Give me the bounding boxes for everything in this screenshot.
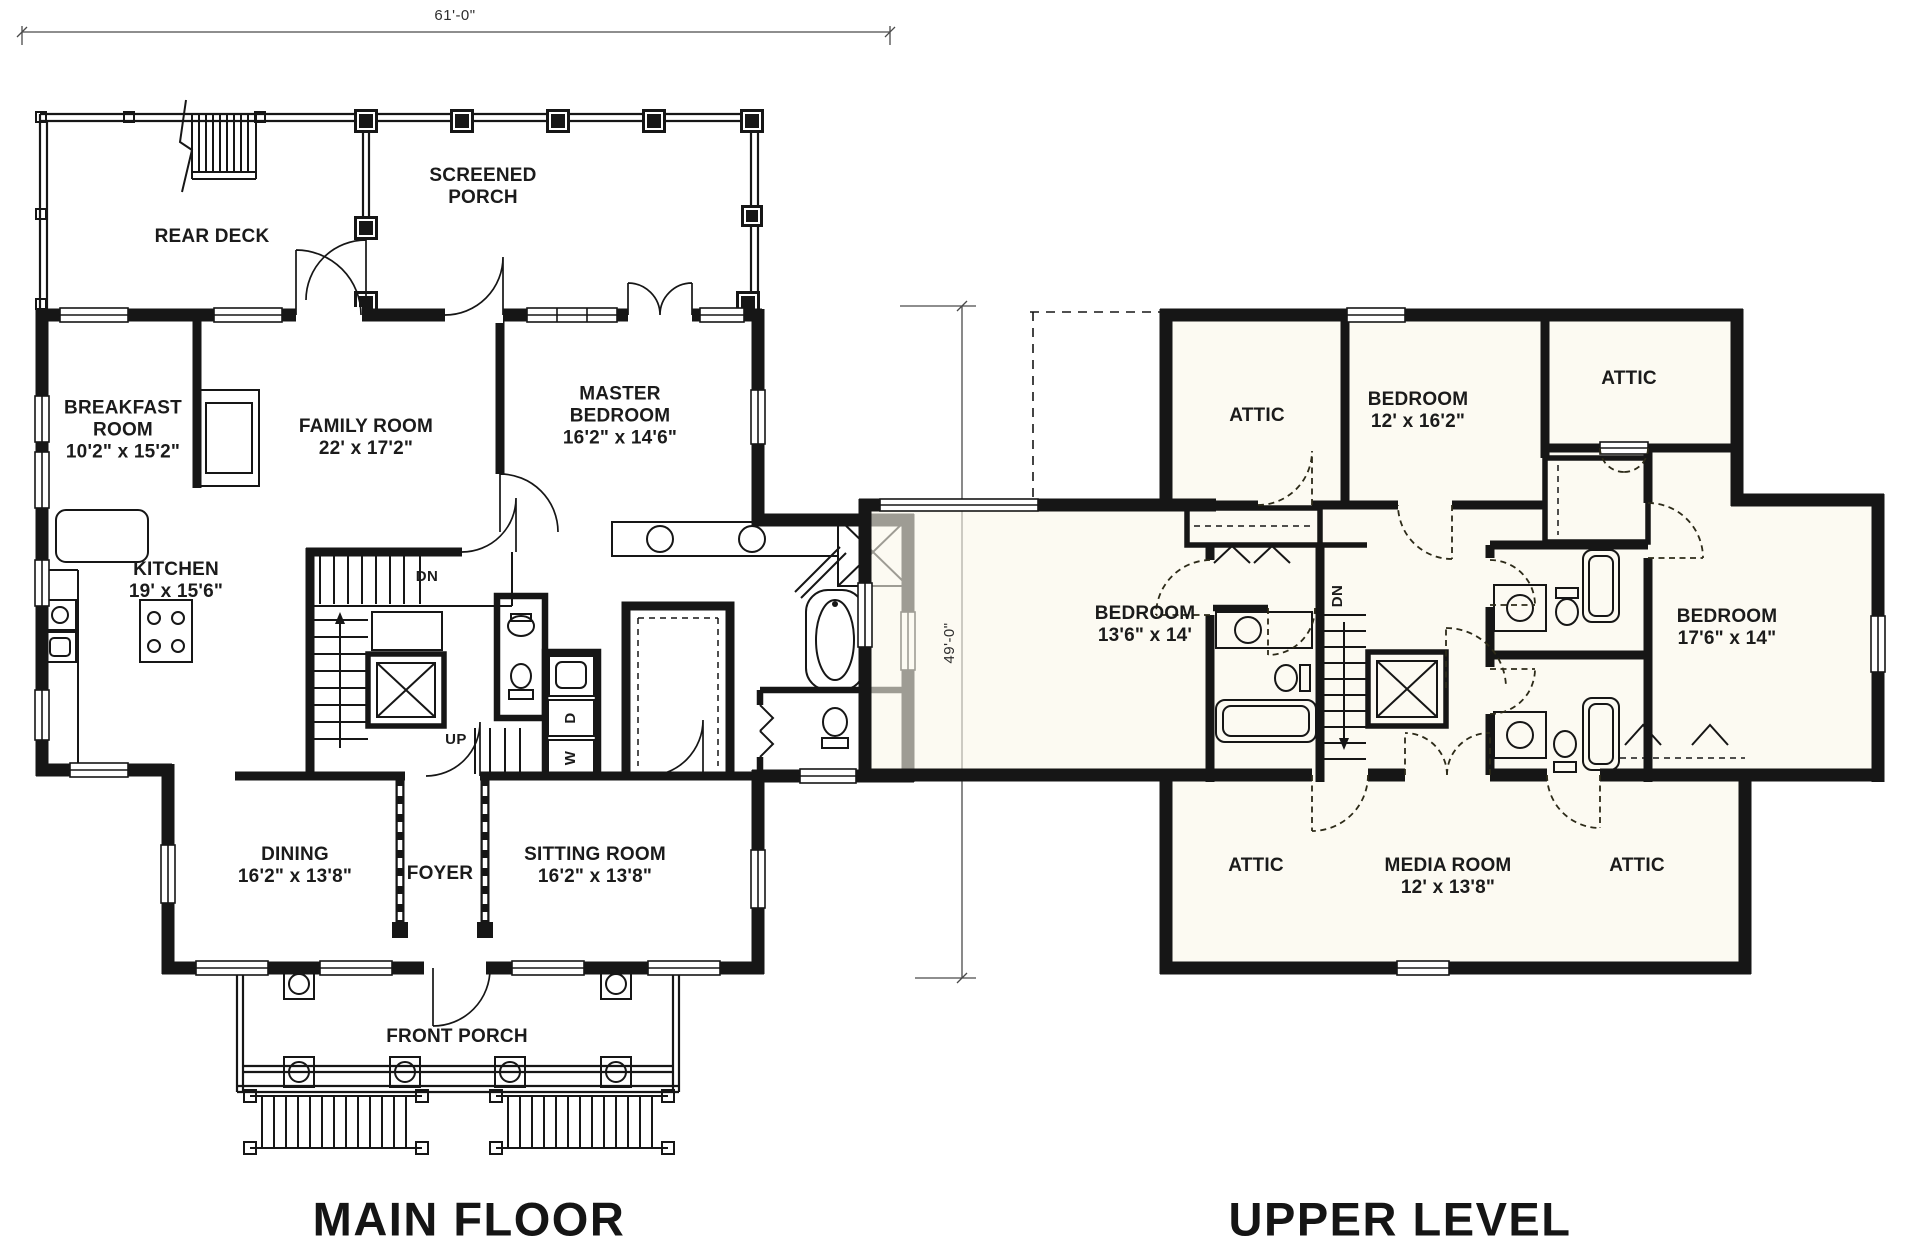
dimension-height-label: 49'-0" [941, 622, 959, 663]
room-label-screened-porch: SCREENED PORCH [423, 165, 543, 209]
room-label-attic-bottom-right: ATTIC [1582, 855, 1692, 877]
room-label-dining: DINING16'2" x 13'8" [205, 844, 385, 888]
room-label-attic-top-left: ATTIC [1202, 405, 1312, 427]
stair-annotation-dn: DN [416, 568, 438, 586]
stair-annotation-up: UP [445, 731, 467, 749]
fireplace [199, 390, 259, 486]
dimension-width-label: 61'-0" [434, 7, 475, 25]
washer-annotation: W [562, 751, 580, 766]
master-bath-fixtures [508, 518, 908, 776]
upper-level-title: UPPER LEVEL [1229, 1193, 1572, 1248]
main-floor-title: MAIN FLOOR [313, 1193, 626, 1248]
upper-stair-annotation-dn: DN [1329, 585, 1347, 607]
room-label-family-room: FAMILY ROOM22' x 17'2" [256, 416, 476, 460]
porch-railing-balusters [244, 1090, 674, 1154]
floor-plan-page: 61'-0" 49'-0" REAR DECK SCREENED PORCH B… [0, 0, 1917, 1260]
room-label-media-room: MEDIA ROOM12' x 13'8" [1353, 855, 1543, 899]
room-label-kitchen: KITCHEN19' x 15'6" [91, 559, 261, 603]
room-label-rear-deck: REAR DECK [122, 226, 302, 248]
room-label-bedroom-right: BEDROOM17'6" x 14" [1647, 606, 1807, 650]
room-label-bedroom-top: BEDROOM12' x 16'2" [1348, 389, 1488, 433]
room-label-front-porch: FRONT PORCH [337, 1026, 577, 1048]
room-label-attic-bottom-left: ATTIC [1201, 855, 1311, 877]
porch-columns [354, 109, 764, 315]
room-label-bedroom-left: BEDROOM13'6" x 14' [1070, 603, 1220, 647]
room-label-sitting-room: SITTING ROOM16'2" x 13'8" [475, 844, 715, 888]
kitchen-fixtures [42, 510, 192, 768]
roof-dashed-outline [1030, 312, 1160, 502]
rear-deck-structure [36, 100, 363, 310]
room-label-master-bedroom: MASTER BEDROOM16'2" x 14'6" [552, 384, 688, 451]
dryer-annotation: D [562, 712, 580, 723]
screened-porch-structure [306, 109, 764, 315]
room-label-breakfast-room: BREAKFAST ROOM10'2" x 15'2" [57, 398, 189, 465]
front-porch-structure [237, 969, 679, 1154]
room-label-attic-top-right: ATTIC [1574, 368, 1684, 390]
